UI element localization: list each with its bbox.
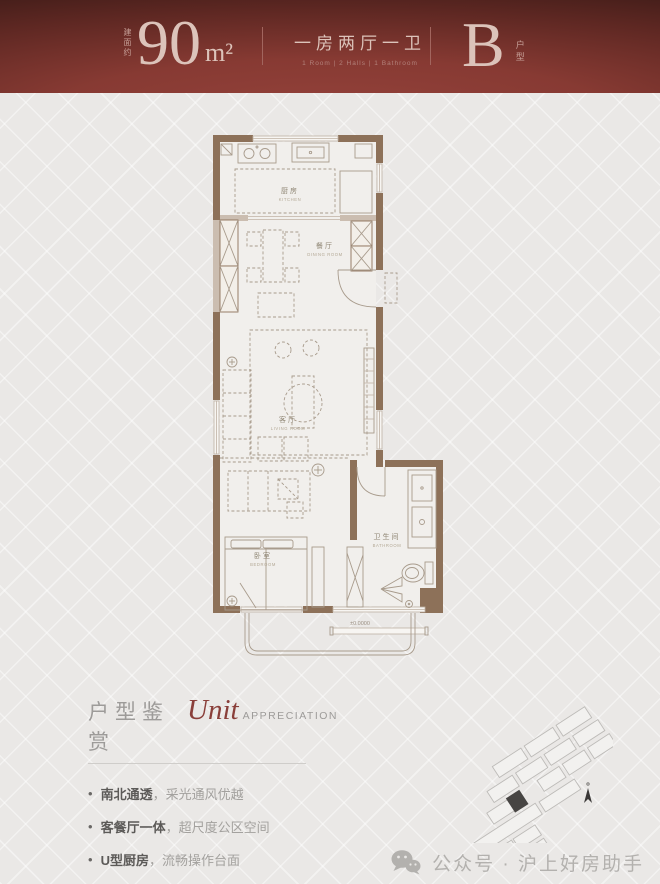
bullet-icon: • [88, 786, 93, 801]
area-group: 建面约 90 m² [122, 14, 233, 72]
area-value: 90 [137, 14, 201, 72]
bullet-text: ，超尺度公区空间 [166, 817, 270, 836]
watermark: 公众号 · 沪上好房助手 [390, 849, 644, 876]
room-label-bathroom-cn: 卫生间 [374, 532, 401, 541]
bullet-highlight: 南北通透 [101, 784, 153, 803]
bullet-icon: • [88, 819, 93, 834]
room-label-kitchen-en: KITCHEN [279, 197, 302, 202]
header-divider [262, 27, 263, 65]
plan-interior [220, 142, 436, 606]
bullet-highlight: 客餐厅一体 [101, 817, 166, 836]
bullet-icon: • [88, 852, 93, 867]
bullet-highlight: U型厨房 [101, 850, 149, 869]
room-label-kitchen-cn: 厨房 [281, 186, 299, 195]
poster-page: 建面约 90 m² 一房两厅一卫 1 Room | 2 Halls | 1 Ba… [0, 0, 660, 884]
wechat-icon [390, 849, 422, 876]
heading-underline [88, 763, 306, 764]
list-item: • 南北通透 ，采光通风优越 [88, 784, 338, 803]
room-label-bedroom-en: BEDROOM [250, 562, 276, 567]
watermark-text: 公众号 · 沪上好房助手 [432, 849, 644, 876]
balcony: ±0.0000 [245, 613, 428, 655]
room-label-dining-cn: 餐厅 [316, 241, 334, 250]
list-item: • U型厨房 ，流畅操作台面 [88, 850, 338, 869]
room-label-dining-en: DINING ROOM [307, 252, 342, 257]
unit-letter: B [462, 10, 505, 80]
header-divider [430, 27, 431, 65]
appreciation-heading: 户型鉴赏 Unit APPRECIATION [88, 694, 338, 756]
bullet-text: ，采光通风优越 [153, 784, 244, 803]
room-label-living-cn: 客厅 [279, 415, 297, 424]
bullet-text: ，流畅操作台面 [149, 850, 240, 869]
layout-group: 一房两厅一卫 1 Room | 2 Halls | 1 Bathroom [280, 29, 440, 67]
area-prefix: 建面约 [122, 28, 133, 58]
unit-group: B 户型 [462, 10, 527, 80]
unit-label: 户型 [514, 40, 527, 64]
layout-en: 1 Room | 2 Halls | 1 Bathroom [280, 60, 440, 67]
elevation-mark: ±0.0000 [350, 621, 370, 627]
appreciation-section: 户型鉴赏 Unit APPRECIATION • 南北通透 ，采光通风优越 • … [88, 694, 338, 884]
layout-cn: 一房两厅一卫 [280, 29, 440, 54]
header-banner: 建面约 90 m² 一房两厅一卫 1 Room | 2 Halls | 1 Ba… [0, 0, 660, 93]
floor-plan: 厨房 KITCHEN 餐厅 DINING ROOM [190, 115, 470, 675]
feature-list: • 南北通透 ，采光通风优越 • 客餐厅一体 ，超尺度公区空间 • U型厨房 ，… [88, 784, 338, 884]
appreciation-title-script: Unit [187, 694, 239, 727]
appreciation-title-cn: 户型鉴赏 [88, 696, 175, 756]
room-label-living-en: LIVING ROOM [271, 426, 306, 431]
room-label-bedroom-cn: 卧室 [254, 551, 272, 560]
site-plan [438, 688, 613, 843]
north-arrow-icon [584, 783, 592, 803]
room-label-bathroom-en: BATHROOM [373, 543, 402, 548]
appreciation-title-en: APPRECIATION [243, 710, 338, 722]
list-item: • 客餐厅一体 ，超尺度公区空间 [88, 817, 338, 836]
area-unit: m² [205, 38, 233, 68]
